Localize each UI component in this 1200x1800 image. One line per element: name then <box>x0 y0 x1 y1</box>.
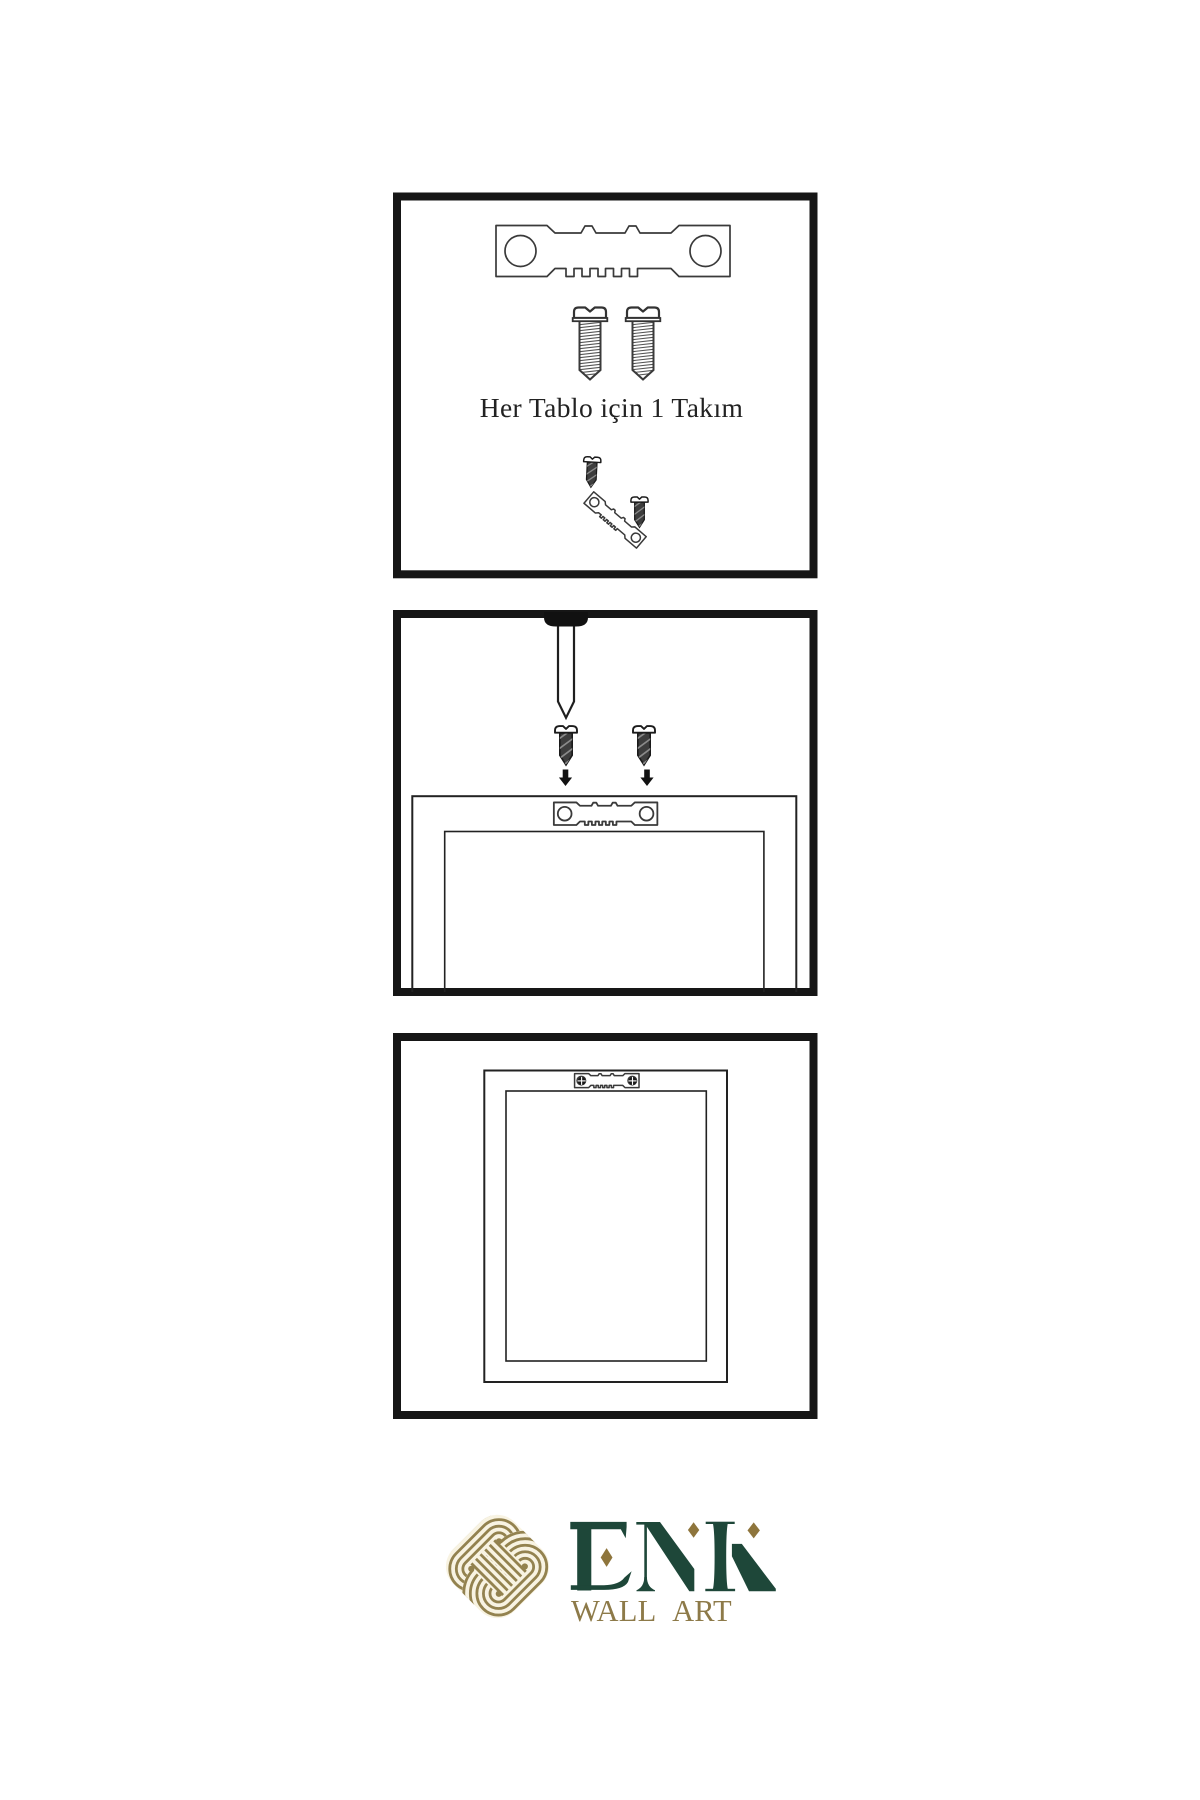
svg-text:WALL ART: WALL ART <box>571 1594 732 1628</box>
svg-text:Her Tablo için 1 Takım: Her Tablo için 1 Takım <box>480 392 744 423</box>
